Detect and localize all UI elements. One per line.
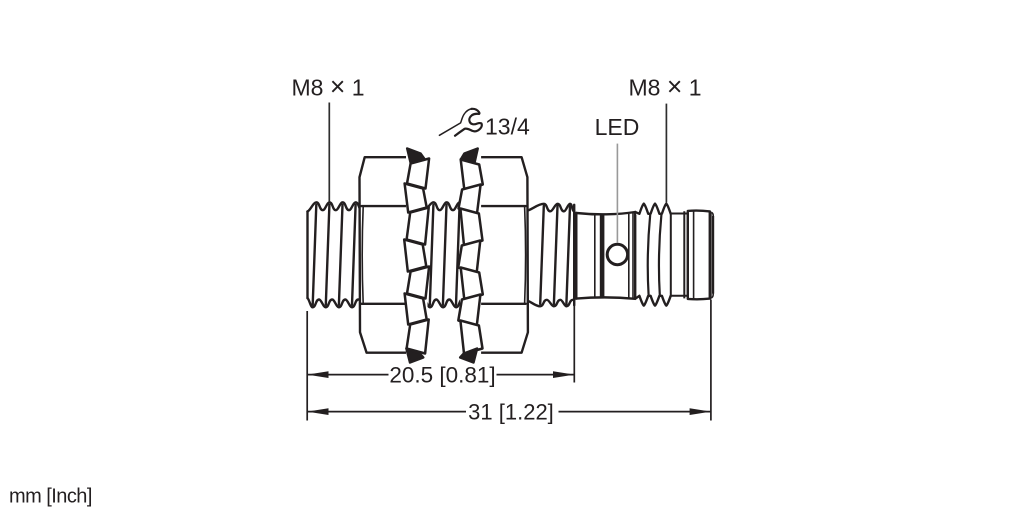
svg-text:LED: LED <box>595 114 640 140</box>
svg-text:20.5 [0.81]: 20.5 [0.81] <box>389 362 495 387</box>
svg-text:M8 × 1: M8 × 1 <box>628 71 701 101</box>
svg-text:13/4: 13/4 <box>485 114 530 140</box>
svg-text:M8 × 1: M8 × 1 <box>291 72 364 102</box>
svg-text:mm [Inch]: mm [Inch] <box>9 485 92 507</box>
svg-text:31 [1.22]: 31 [1.22] <box>468 399 554 424</box>
